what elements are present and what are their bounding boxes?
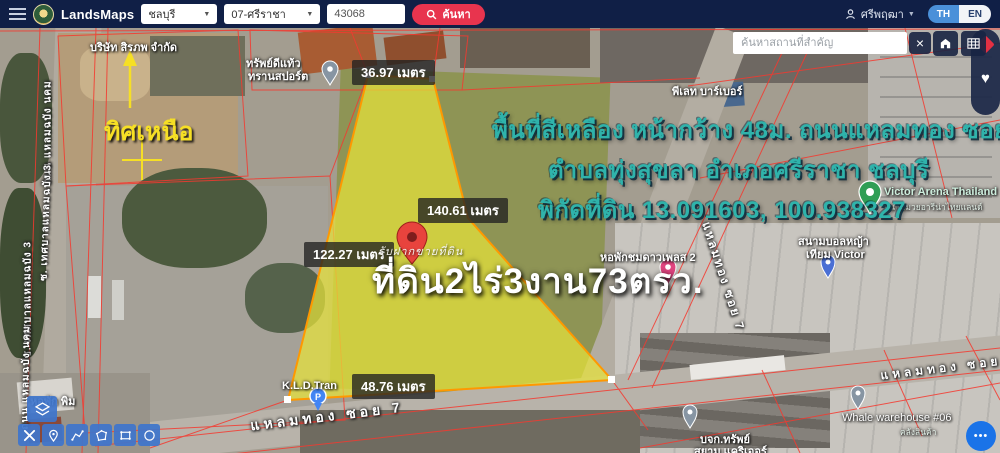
measure-line-icon: [71, 429, 84, 442]
search-button-label: ค้นหา: [442, 5, 470, 23]
north-arrow-icon: [123, 50, 137, 108]
measurement-top: 36.97 เมตร: [352, 60, 435, 85]
language-toggle: TH EN: [928, 5, 991, 23]
user-menu[interactable]: ศรีพฤฒา ▼: [844, 5, 915, 23]
transport-poi-pin[interactable]: [322, 61, 338, 85]
poi-label-kld-tran[interactable]: K.L.D.Tran: [282, 380, 337, 392]
lang-en-button[interactable]: EN: [959, 5, 991, 23]
circle-icon: [143, 429, 156, 442]
poi-label-carrier-2[interactable]: สยาม แคริเออร์: [694, 442, 767, 453]
grid-layers-button[interactable]: [961, 31, 986, 56]
more-options-button[interactable]: •••: [966, 421, 996, 451]
annotation-line3: พิกัดที่ดิน 13.091603, 100.938327: [538, 190, 906, 229]
ellipsis-icon: •••: [974, 430, 989, 442]
district-value: 07-ศรีราชา: [231, 5, 286, 23]
north-label: ทิศเหนือ: [104, 112, 193, 152]
top-navbar: LandsMaps ชลบุรี ▼ 07-ศรีราชา ▼ ค้นหา ศร…: [0, 0, 1000, 28]
search-icon: [426, 9, 437, 20]
draw-circle-button[interactable]: [138, 424, 160, 446]
brand-title: LandsMaps: [61, 7, 134, 22]
close-icon: ×: [916, 35, 924, 51]
draw-rectangle-button[interactable]: [114, 424, 136, 446]
province-select[interactable]: ชลบุรี ▼: [141, 4, 217, 24]
rectangle-icon: [119, 429, 132, 442]
home-button[interactable]: [933, 31, 958, 56]
poi-search-input[interactable]: [733, 32, 907, 54]
chevron-down-icon: ▼: [203, 11, 210, 18]
district-select[interactable]: 07-ศรีราชา ▼: [224, 4, 320, 24]
chevron-down-icon: ▼: [306, 11, 313, 18]
landsmaps-logo[interactable]: [33, 4, 54, 25]
search-button[interactable]: ค้นหา: [412, 4, 484, 25]
poi-label-barber[interactable]: พีเลท บาร์เบอร์: [672, 82, 742, 100]
pin-icon: [47, 429, 60, 442]
heart-icon[interactable]: ♥: [981, 71, 990, 86]
landsmaps-app: LandsMaps ชลบุรี ▼ 07-ศรีราชา ▼ ค้นหา ศร…: [0, 0, 1000, 453]
province-value: ชลบุรี: [148, 5, 175, 23]
chevron-down-icon: ▼: [908, 11, 915, 18]
layers-icon: [35, 402, 50, 417]
svg-text:P: P: [315, 392, 321, 402]
menu-icon[interactable]: [9, 8, 26, 20]
lang-th-button[interactable]: TH: [928, 5, 959, 23]
layers-tool-button[interactable]: [27, 396, 57, 422]
poi-label-sirapob[interactable]: บริษัท สิรภพ จำกัด: [90, 38, 177, 56]
poi-sublabel-whale-warehouse[interactable]: คลังสินค้า: [900, 425, 937, 439]
poi-label-transport-2[interactable]: ทรานสปอร์ต: [248, 67, 308, 85]
polygon-icon: [95, 429, 108, 442]
user-icon: [844, 8, 857, 21]
grid-icon: [966, 36, 981, 51]
annotation-line1: พื้นที่สีเหลือง หน้ากว้าง 48ม. ถนนแหลมทอ…: [492, 110, 1000, 149]
measurement-bottom: 48.76 เมตร: [352, 374, 435, 399]
annotation-line2: ตำบลทุ่งสุขลา อำเภอศรีราชา ชลบุรี: [548, 150, 929, 189]
clear-search-button[interactable]: ×: [909, 32, 931, 54]
parcel-area-text: ที่ดิน2ไร่3งาน73ตรว.: [372, 254, 704, 309]
measure-line-button[interactable]: [66, 424, 88, 446]
satellite-map[interactable]: P 36.97 เมตร 140.61 เมตร 122.27 เมตร 48.…: [0, 28, 1000, 453]
poi-label-football-2[interactable]: เทียม Victor: [806, 245, 865, 263]
measurement-right: 140.61 เมตร: [418, 198, 508, 223]
clear-draw-button[interactable]: [18, 424, 40, 446]
home-icon: [938, 36, 953, 51]
warehouse-poi-pin[interactable]: [851, 386, 865, 409]
carrier-poi-pin[interactable]: [683, 405, 697, 428]
drop-pin-button[interactable]: [42, 424, 64, 446]
poi-label-whale-warehouse[interactable]: Whale warehouse #06: [842, 412, 951, 424]
clear-cross-icon: [23, 429, 36, 442]
draw-polygon-button[interactable]: [90, 424, 112, 446]
user-name: ศรีพฤฒา: [861, 5, 904, 23]
parcel-number-input[interactable]: [327, 4, 405, 24]
